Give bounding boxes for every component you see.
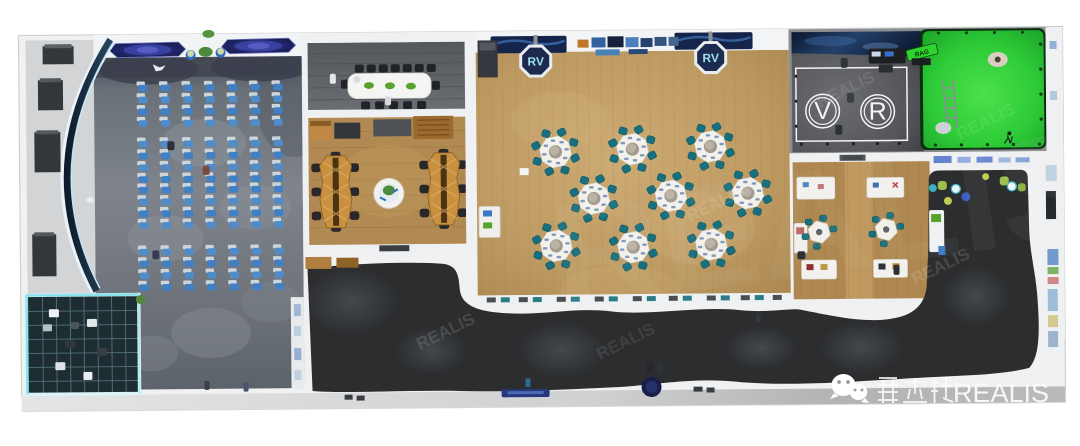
svg-text:RV: RV bbox=[702, 51, 719, 65]
svg-text:RV: RV bbox=[527, 54, 544, 68]
svg-text:REALIS: REALIS bbox=[953, 378, 1049, 408]
svg-text:R: R bbox=[869, 97, 887, 125]
